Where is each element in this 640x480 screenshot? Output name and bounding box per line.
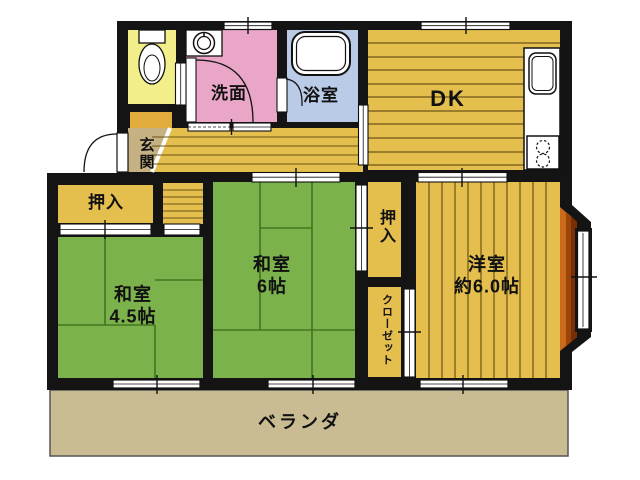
western-room-name: 洋室 bbox=[454, 254, 520, 276]
door-corridor-japanese-4-5 bbox=[164, 224, 200, 235]
shoe-cabinet bbox=[130, 112, 172, 128]
door-hallway-dk bbox=[359, 105, 369, 165]
japanese-room-6-label: 和室 6帖 bbox=[253, 254, 291, 297]
dk-label: DK bbox=[430, 86, 466, 112]
japanese-room-4-5-size: 4.5帖 bbox=[109, 306, 156, 328]
hallway bbox=[150, 128, 363, 172]
western-room-label: 洋室 約6.0帖 bbox=[454, 254, 520, 297]
western-room-size: 約6.0帖 bbox=[454, 276, 520, 298]
bathroom-label: 浴室 bbox=[303, 86, 339, 106]
bathtub-icon bbox=[292, 32, 350, 75]
washroom-label: 洗面 bbox=[211, 84, 247, 104]
toilet-icon bbox=[139, 30, 165, 84]
door-toilet bbox=[176, 63, 187, 105]
japanese-room-4-5-label: 和室 4.5帖 bbox=[109, 284, 156, 327]
entrance-label: 玄関 bbox=[139, 137, 154, 171]
closet-left-label: 押入 bbox=[88, 193, 124, 213]
washing-machine-icon bbox=[186, 30, 222, 56]
japanese-room-4-5-name: 和室 bbox=[109, 284, 156, 306]
veranda-label: ベランダ bbox=[258, 412, 342, 434]
closet-western-label: クローゼット bbox=[381, 294, 392, 366]
japanese-room-6-name: 和室 bbox=[253, 254, 291, 276]
stove-icon bbox=[527, 136, 559, 169]
bay-window bbox=[560, 207, 597, 351]
closet-right-label: 押入 bbox=[377, 209, 393, 245]
floor-plan-page: 洗面 浴室 DK 玄関 押入 和室 4.5帖 和室 6帖 押入 クローゼット 洋… bbox=[0, 0, 640, 480]
floor-plan-canvas bbox=[0, 0, 640, 480]
kitchen-sink-icon bbox=[529, 53, 556, 94]
japanese-room-6-size: 6帖 bbox=[253, 276, 291, 298]
